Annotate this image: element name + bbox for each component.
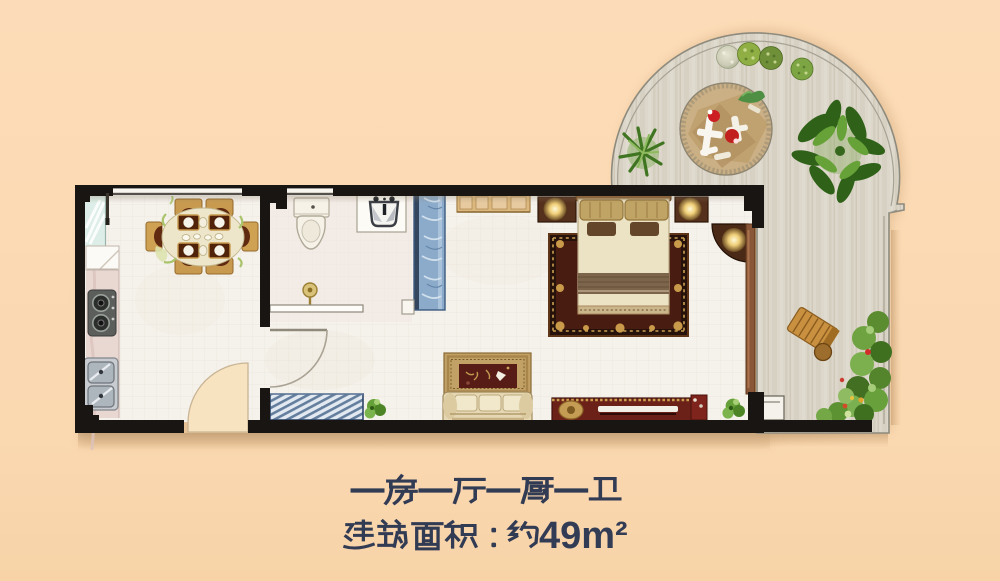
svg-text:49m²: 49m²: [539, 515, 628, 557]
